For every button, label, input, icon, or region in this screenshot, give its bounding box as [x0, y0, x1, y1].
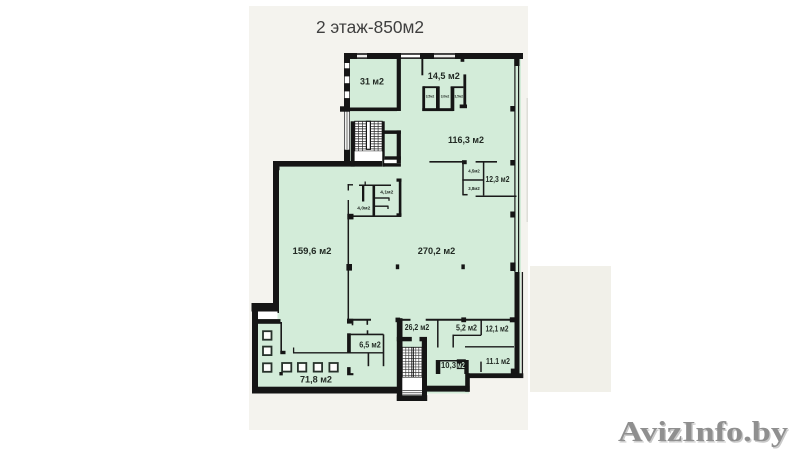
svg-text:116,3 м2: 116,3 м2: [448, 135, 484, 145]
svg-text:3,5м2: 3,5м2: [426, 94, 435, 99]
svg-text:5,2 м2: 5,2 м2: [456, 324, 477, 333]
svg-text:4,0м2: 4,0м2: [357, 206, 371, 211]
svg-text:71,8 м2: 71,8 м2: [300, 375, 332, 386]
svg-text:11.1 м2: 11.1 м2: [486, 357, 510, 366]
svg-text:4,5м2: 4,5м2: [468, 168, 480, 173]
svg-text:14,5 м2: 14,5 м2: [428, 71, 460, 81]
svg-text:6,5 м2: 6,5 м2: [359, 341, 381, 350]
svg-text:м2: м2: [457, 361, 465, 370]
svg-text:12,3 м2: 12,3 м2: [486, 175, 510, 184]
svg-text:10,3: 10,3: [441, 361, 457, 370]
svg-text:3,5м2: 3,5м2: [455, 94, 464, 99]
svg-text:12,1 м2: 12,1 м2: [486, 325, 509, 334]
svg-text:4,1м2: 4,1м2: [380, 190, 394, 195]
svg-text:159,6 м2: 159,6 м2: [293, 246, 332, 256]
svg-text:AvizInfo.by: AvizInfo.by: [618, 416, 789, 448]
svg-text:3,8м2: 3,8м2: [468, 186, 480, 191]
svg-text:2 этаж-850м2: 2 этаж-850м2: [316, 17, 424, 37]
svg-text:31 м2: 31 м2: [360, 77, 384, 87]
svg-text:270,2 м2: 270,2 м2: [418, 246, 456, 256]
svg-text:26,2 м2: 26,2 м2: [405, 323, 430, 332]
svg-text:3,0м2: 3,0м2: [441, 94, 450, 99]
